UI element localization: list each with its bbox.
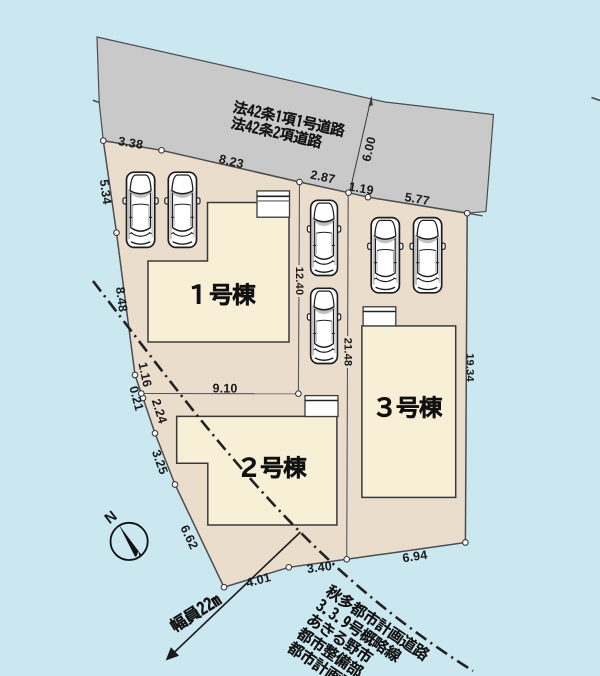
svg-text:9.10: 9.10 xyxy=(212,381,237,395)
svg-text:19.34: 19.34 xyxy=(464,353,476,382)
svg-text:12.40: 12.40 xyxy=(293,267,305,296)
svg-text:21.48: 21.48 xyxy=(342,338,354,367)
